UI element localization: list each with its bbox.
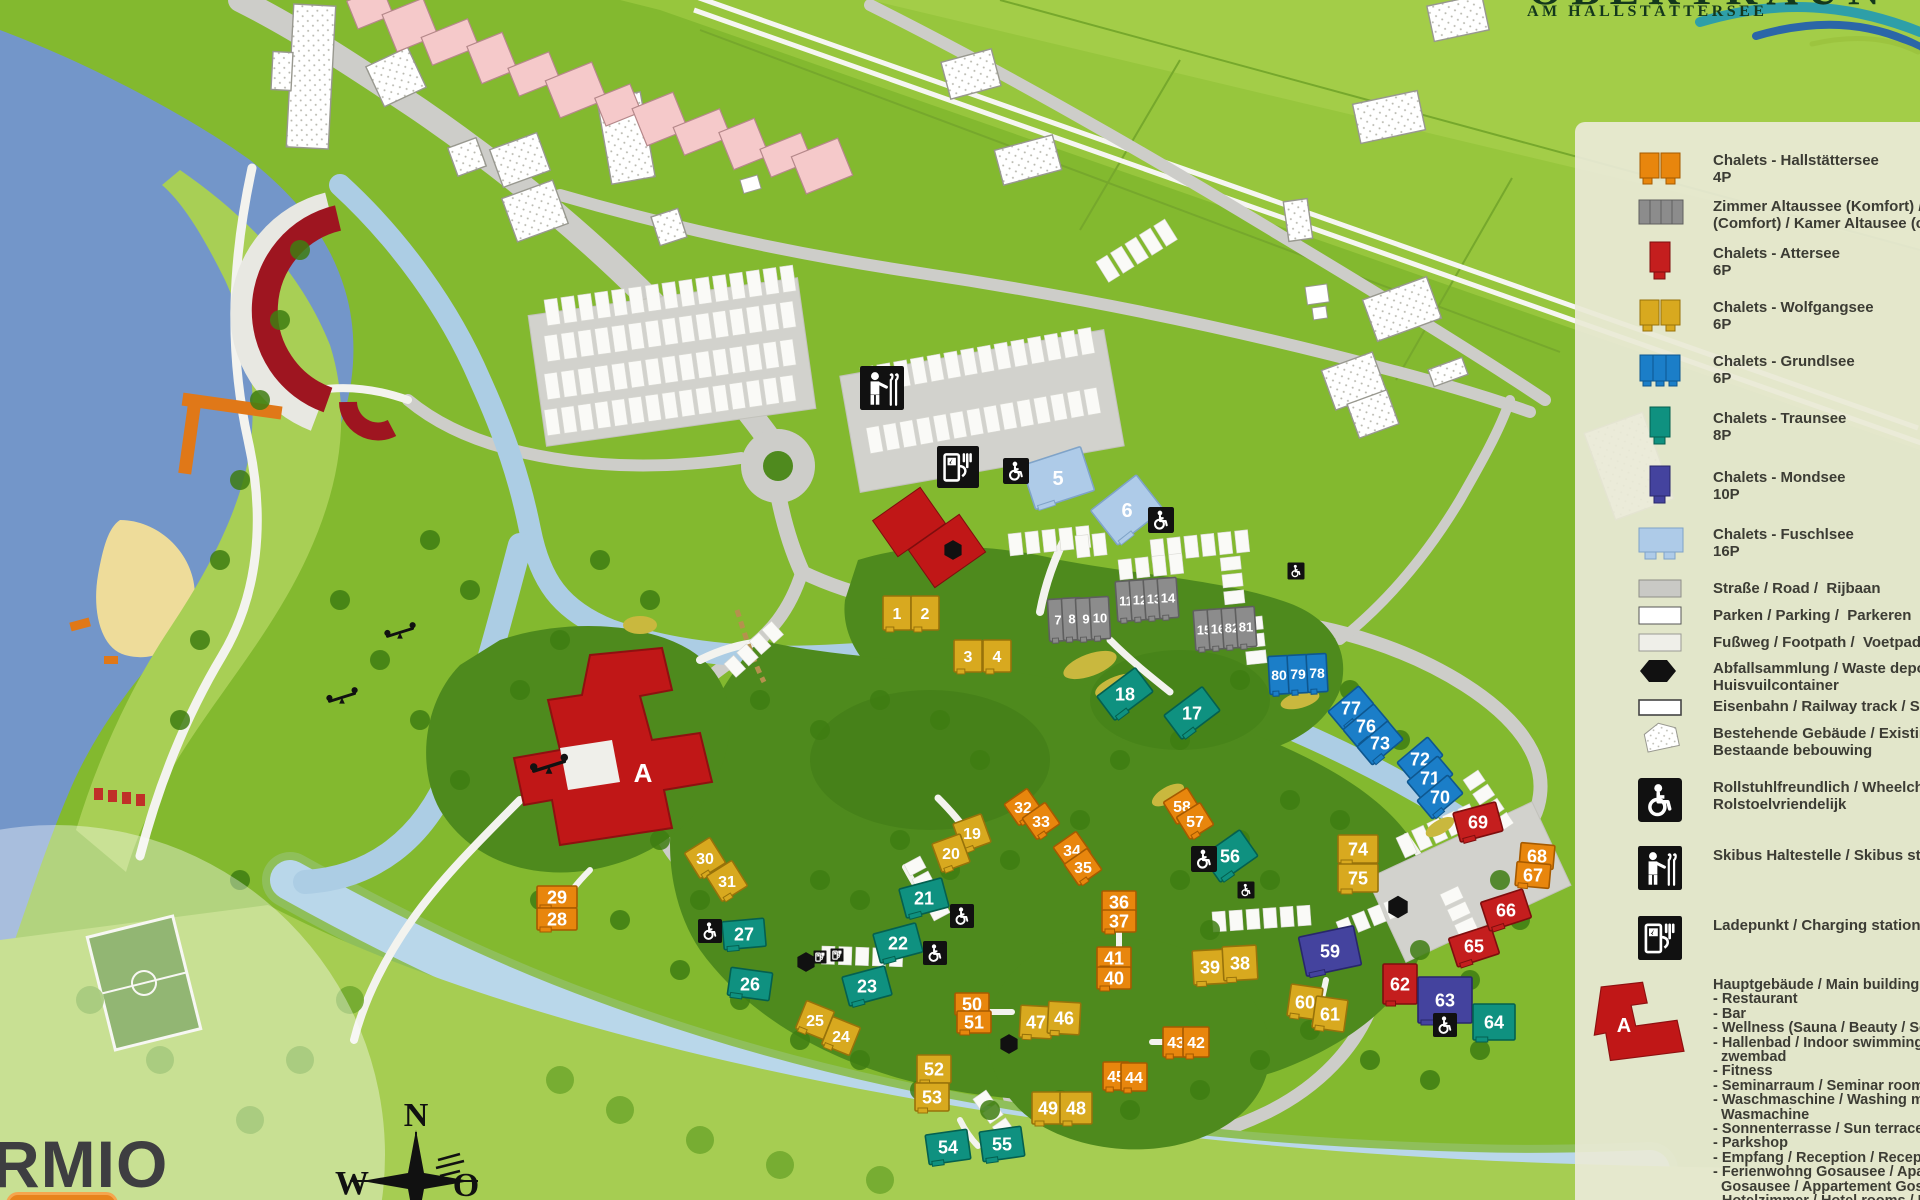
- chalet-number: 39: [1200, 957, 1220, 977]
- wheelchair-icon: [1003, 458, 1029, 484]
- chalet-number: 4: [993, 649, 1002, 666]
- chalet-number: 78: [1309, 665, 1325, 681]
- chalet-number: 19: [963, 826, 981, 843]
- legend-item-text: Hauptgebäude / Main building / Hoof- Res…: [1713, 978, 1920, 1200]
- legend-item-line: - Waschmaschine / Washing machine: [1713, 1093, 1920, 1107]
- chalet-unit-27[interactable]: 27: [722, 918, 766, 952]
- legend-item-text: Abfallsammlung / Waste deposit /Huisvuil…: [1713, 660, 1920, 694]
- legend-item-line: - Parkshop: [1713, 1136, 1920, 1150]
- legend-item-line: - Sonnenterrasse / Sun terrace / Zonn: [1713, 1122, 1920, 1136]
- chalet-unit-74[interactable]: 74: [1338, 835, 1378, 865]
- chalet-number: 48: [1066, 1098, 1086, 1118]
- charging-icon: [814, 951, 827, 964]
- legend-item-line: Bestaande bebouwing: [1713, 742, 1920, 759]
- brand-logo-shape: [6, 1192, 118, 1200]
- chalet-number: 74: [1348, 839, 1368, 859]
- chalet-number: 44: [1125, 1070, 1143, 1087]
- wheelchair-icon: [1191, 846, 1217, 872]
- chalet-unit-52[interactable]: 52: [917, 1055, 951, 1085]
- legend-item-line: Abfallsammlung / Waste deposit /: [1713, 660, 1920, 677]
- legend-item-line: - Fitness: [1713, 1064, 1920, 1078]
- chalet-number: 64: [1484, 1012, 1504, 1032]
- legend-item-line: Skibus Haltestelle / Skibus stop / Ski: [1713, 847, 1920, 864]
- chalet-number: 24: [832, 1029, 850, 1046]
- legend-main-building-icon: A: [1592, 980, 1692, 1071]
- chalet-number: 80: [1271, 667, 1287, 683]
- legend-item-line: Chalets - Hallstättersee: [1713, 152, 1879, 169]
- legend-item-text: Bestehende Gebäude / Existing buildBesta…: [1713, 725, 1920, 759]
- chalet-unit-28[interactable]: 28: [537, 908, 577, 932]
- legend-item-line: 6P: [1713, 316, 1874, 333]
- chalet-unit-10[interactable]: 10: [1089, 597, 1110, 642]
- chalet-number: 51: [964, 1012, 984, 1032]
- chalet-unit-37[interactable]: 37: [1102, 910, 1136, 934]
- chalet-number: 3: [964, 649, 973, 666]
- chalet-number: 53: [922, 1087, 942, 1107]
- legend-item-text: Rollstuhlfreundlich / Wheelchair frienRo…: [1713, 779, 1920, 813]
- chalet-number: 37: [1109, 911, 1129, 931]
- chalet-number: 30: [696, 851, 714, 868]
- legend-item-text: Chalets - Mondsee10P: [1713, 469, 1846, 503]
- chalet-unit-67[interactable]: 67: [1515, 862, 1551, 891]
- legend-item-line: Gosausee / Appartement Gosausee: [1713, 1180, 1920, 1194]
- legend-item-line: 10P: [1713, 486, 1846, 503]
- legend-item-line: Hauptgebäude / Main building / Hoof: [1713, 978, 1920, 992]
- chalet-number: 29: [547, 887, 567, 907]
- chalet-unit-49[interactable]: 49: [1032, 1092, 1064, 1126]
- chalet-number: 33: [1032, 814, 1050, 831]
- chalet-unit-46[interactable]: 46: [1047, 1001, 1081, 1037]
- chalet-number: 17: [1182, 703, 1202, 723]
- legend-wheelchair-icon: [1637, 777, 1683, 828]
- legend-item-text: Eisenbahn / Railway track / Spoorbaa: [1713, 698, 1920, 715]
- chalet-number: 23: [857, 976, 877, 996]
- legend-chalet-single-icon: [1637, 239, 1685, 288]
- legend-item-text: Skibus Haltestelle / Skibus stop / Ski: [1713, 847, 1920, 864]
- chalet-number: 59: [1320, 941, 1340, 961]
- legend-item-line: zwembad: [1713, 1050, 1920, 1064]
- legend-item-line: (Comfort) / Kamer Altausee (comfort): [1713, 215, 1920, 232]
- chalet-number: 28: [547, 909, 567, 929]
- legend-existing-icon: [1637, 719, 1685, 762]
- chalet-number: 26: [740, 974, 760, 994]
- legend-chalet-single-icon: [1637, 404, 1685, 453]
- chalet-unit-3[interactable]: 3: [954, 640, 982, 674]
- legend-item-text: Chalets - Wolfgangsee6P: [1713, 299, 1874, 333]
- chalet-unit-78[interactable]: 78: [1306, 654, 1328, 695]
- legend-item-line: Ladepunkt / Charging station / Laadp: [1713, 917, 1920, 934]
- chalet-unit-38[interactable]: 38: [1222, 945, 1258, 983]
- legend-item-line: - Ferienwohng Gosausee / Apartmen: [1713, 1165, 1920, 1179]
- chalet-number: 6: [1121, 500, 1132, 522]
- charging-icon: [831, 949, 844, 962]
- legend-chalet-single-icon: [1637, 463, 1685, 512]
- legend-item-text: Chalets - Hallstättersee4P: [1713, 152, 1879, 186]
- chalet-number: 79: [1290, 666, 1306, 682]
- chalet-number: 31: [718, 874, 736, 891]
- brand-logo-partial: RMIO: [0, 1126, 168, 1200]
- wheelchair-icon: [1238, 882, 1255, 899]
- compass-north: N: [404, 1097, 429, 1134]
- chalet-number: 21: [914, 888, 934, 908]
- chalet-number: 69: [1468, 812, 1488, 832]
- wheelchair-icon: [950, 904, 974, 928]
- legend-parking-icon: [1637, 605, 1685, 632]
- legend-item-line: Chalets - Wolfgangsee: [1713, 299, 1874, 316]
- svg-text:A: A: [1617, 1015, 1631, 1037]
- compass-east: O: [453, 1167, 479, 1200]
- chalet-number: 9: [1082, 612, 1089, 627]
- resort-logo-subtitle: AM HALLSTÄTTERSEE: [1527, 3, 1767, 21]
- chalet-number: 61: [1320, 1004, 1340, 1024]
- chalet-unit-42[interactable]: 42: [1183, 1027, 1209, 1059]
- legend-charging-icon: [1637, 915, 1683, 966]
- chalet-number: 42: [1187, 1035, 1205, 1052]
- resort-map-page: A 12345678910111213141516828117181920212…: [0, 0, 1920, 1200]
- chalet-number: 22: [888, 933, 908, 953]
- chalet-unit-4[interactable]: 4: [983, 640, 1011, 674]
- legend-item-line: 6P: [1713, 370, 1855, 387]
- chalet-number: 77: [1341, 698, 1361, 718]
- legend-item-line: - Empfang / Reception / Receptie: [1713, 1151, 1920, 1165]
- chalet-unit-75[interactable]: 75: [1338, 864, 1378, 894]
- chalet-number: 46: [1054, 1008, 1074, 1028]
- main-building-label: A: [634, 758, 653, 788]
- chalet-unit-64[interactable]: 64: [1473, 1004, 1515, 1042]
- chalet-number: 49: [1038, 1098, 1058, 1118]
- legend-chalet-row3-icon: [1637, 347, 1685, 396]
- chalet-number: 56: [1220, 846, 1240, 866]
- chalet-unit-44[interactable]: 44: [1121, 1063, 1147, 1093]
- chalet-unit-81[interactable]: 81: [1235, 606, 1257, 649]
- legend-item-line: Rolstoelvriendelijk: [1713, 796, 1920, 813]
- chalet-number: 81: [1239, 620, 1253, 635]
- chalet-unit-51[interactable]: 51: [957, 1011, 991, 1035]
- chalet-number: 20: [942, 846, 960, 863]
- chalet-unit-1[interactable]: 1: [883, 596, 911, 632]
- legend-item-text: Straße / Road / Rijbaan: [1713, 580, 1881, 597]
- legend-item-line: Chalets - Fuschlsee: [1713, 526, 1854, 543]
- legend-room-block-icon: [1637, 192, 1685, 241]
- chalet-number: 25: [806, 1013, 824, 1030]
- legend-item-line: 6P: [1713, 262, 1840, 279]
- chalet-number: 67: [1523, 865, 1543, 885]
- legend-item-line: Rollstuhlfreundlich / Wheelchair frien: [1713, 779, 1920, 796]
- chalet-number: 38: [1230, 953, 1250, 973]
- legend-waste-icon: [1637, 656, 1681, 691]
- legend-item-line: - Hallenbad / Indoor swimming pool /: [1713, 1036, 1920, 1050]
- wheelchair-icon: [1148, 507, 1174, 533]
- chalet-number: 40: [1104, 968, 1124, 988]
- legend-item-line: Eisenbahn / Railway track / Spoorbaa: [1713, 698, 1920, 715]
- wheelchair-icon: [1433, 1013, 1457, 1037]
- chalet-number: 60: [1295, 992, 1315, 1012]
- chalet-number: 65: [1464, 936, 1484, 956]
- chalet-number: 75: [1348, 868, 1368, 888]
- legend-item-line: - Hotelzimmer / Hotel rooms / Hotelk: [1713, 1194, 1920, 1200]
- chalet-unit-61[interactable]: 61: [1312, 996, 1348, 1034]
- legend-item-line: Zimmer Altaussee (Komfort) / Room A: [1713, 198, 1920, 215]
- legend-item-line: Chalets - Mondsee: [1713, 469, 1846, 486]
- chalet-unit-2[interactable]: 2: [911, 596, 939, 632]
- legend-item-line: - Wellness (Sauna / Beauty / Solariu: [1713, 1021, 1920, 1035]
- charging-icon: [937, 446, 979, 488]
- legend-road-icon: [1637, 578, 1685, 605]
- chalet-number: 66: [1496, 900, 1516, 920]
- wheelchair-icon: [923, 941, 947, 965]
- chalet-number: 7: [1054, 613, 1061, 628]
- legend-skibus-icon: [1637, 845, 1683, 896]
- chalet-number: 70: [1430, 787, 1450, 807]
- chalet-number: 63: [1435, 990, 1455, 1010]
- legend-item-text: Chalets - Fuschlsee16P: [1713, 526, 1854, 560]
- legend-item-line: - Bar: [1713, 1007, 1920, 1021]
- legend-item-line: Wasmachine: [1713, 1108, 1920, 1122]
- legend-item-line: 8P: [1713, 427, 1846, 444]
- chalet-number: 35: [1074, 860, 1092, 877]
- chalet-unit-40[interactable]: 40: [1097, 967, 1131, 991]
- legend-item-line: Huisvuilcontainer: [1713, 677, 1920, 694]
- chalet-number: 55: [992, 1134, 1012, 1154]
- legend-item-line: Straße / Road / Rijbaan: [1713, 580, 1881, 597]
- chalet-number: 47: [1026, 1012, 1046, 1032]
- chalet-number: 73: [1370, 733, 1390, 753]
- chalet-number: 57: [1186, 814, 1204, 831]
- legend-item-line: 16P: [1713, 543, 1854, 560]
- legend-item-text: Chalets - Traunsee8P: [1713, 410, 1846, 444]
- chalet-unit-29[interactable]: 29: [537, 886, 577, 910]
- legend-item-line: Fußweg / Footpath / Voetpad: [1713, 634, 1920, 651]
- chalet-unit-48[interactable]: 48: [1060, 1092, 1092, 1126]
- chalet-unit-53[interactable]: 53: [915, 1083, 949, 1113]
- chalet-number: 54: [938, 1137, 958, 1157]
- legend-item-text: Chalets - Grundlsee6P: [1713, 353, 1855, 387]
- legend-item-text: Fußweg / Footpath / Voetpad: [1713, 634, 1920, 651]
- chalet-unit-62[interactable]: 62: [1383, 964, 1417, 1006]
- chalet-number: 2: [921, 606, 930, 623]
- legend-item-text: Chalets - Attersee6P: [1713, 245, 1840, 279]
- legend-item-text: Zimmer Altaussee (Komfort) / Room A(Comf…: [1713, 198, 1920, 232]
- legend-footpath-icon: [1637, 632, 1685, 659]
- legend-chalet-duo-icon: [1637, 146, 1685, 195]
- wheelchair-icon: [1288, 563, 1305, 580]
- legend-chalet-duo-icon: [1637, 293, 1685, 342]
- chalet-number: 41: [1104, 948, 1124, 968]
- chalet-number: 5: [1052, 468, 1063, 490]
- chalet-number: 10: [1093, 611, 1107, 626]
- legend-item-text: Ladepunkt / Charging station / Laadp: [1713, 917, 1920, 934]
- chalet-number: 27: [734, 924, 754, 944]
- legend-item-line: Bestehende Gebäude / Existing build: [1713, 725, 1920, 742]
- chalet-number: 62: [1390, 974, 1410, 994]
- chalet-number: 8: [1068, 612, 1075, 627]
- compass-west: W: [335, 1165, 369, 1200]
- chalet-number: 1: [893, 606, 902, 623]
- legend-item-line: Chalets - Attersee: [1713, 245, 1840, 262]
- legend-item-line: Chalets - Grundlsee: [1713, 353, 1855, 370]
- legend-item-line: 4P: [1713, 169, 1879, 186]
- chalet-number: 14: [1161, 591, 1176, 606]
- legend-item-line: - Restaurant: [1713, 992, 1920, 1006]
- chalet-unit-26[interactable]: 26: [727, 967, 773, 1003]
- chalet-number: 18: [1115, 684, 1135, 704]
- chalet-unit-14[interactable]: 14: [1157, 577, 1179, 620]
- skibus-icon: [860, 366, 904, 410]
- legend-item-line: - Seminarraum / Seminar room / Sem: [1713, 1079, 1920, 1093]
- legend-chalet-wide-icon: [1637, 520, 1685, 569]
- legend-item-line: Chalets - Traunsee: [1713, 410, 1846, 427]
- roundabout: [741, 429, 815, 503]
- legend-item-text: Parken / Parking / Parkeren: [1713, 607, 1911, 624]
- legend-item-line: Parken / Parking / Parkeren: [1713, 607, 1911, 624]
- chalet-number: 52: [924, 1059, 944, 1079]
- wheelchair-icon: [698, 919, 722, 943]
